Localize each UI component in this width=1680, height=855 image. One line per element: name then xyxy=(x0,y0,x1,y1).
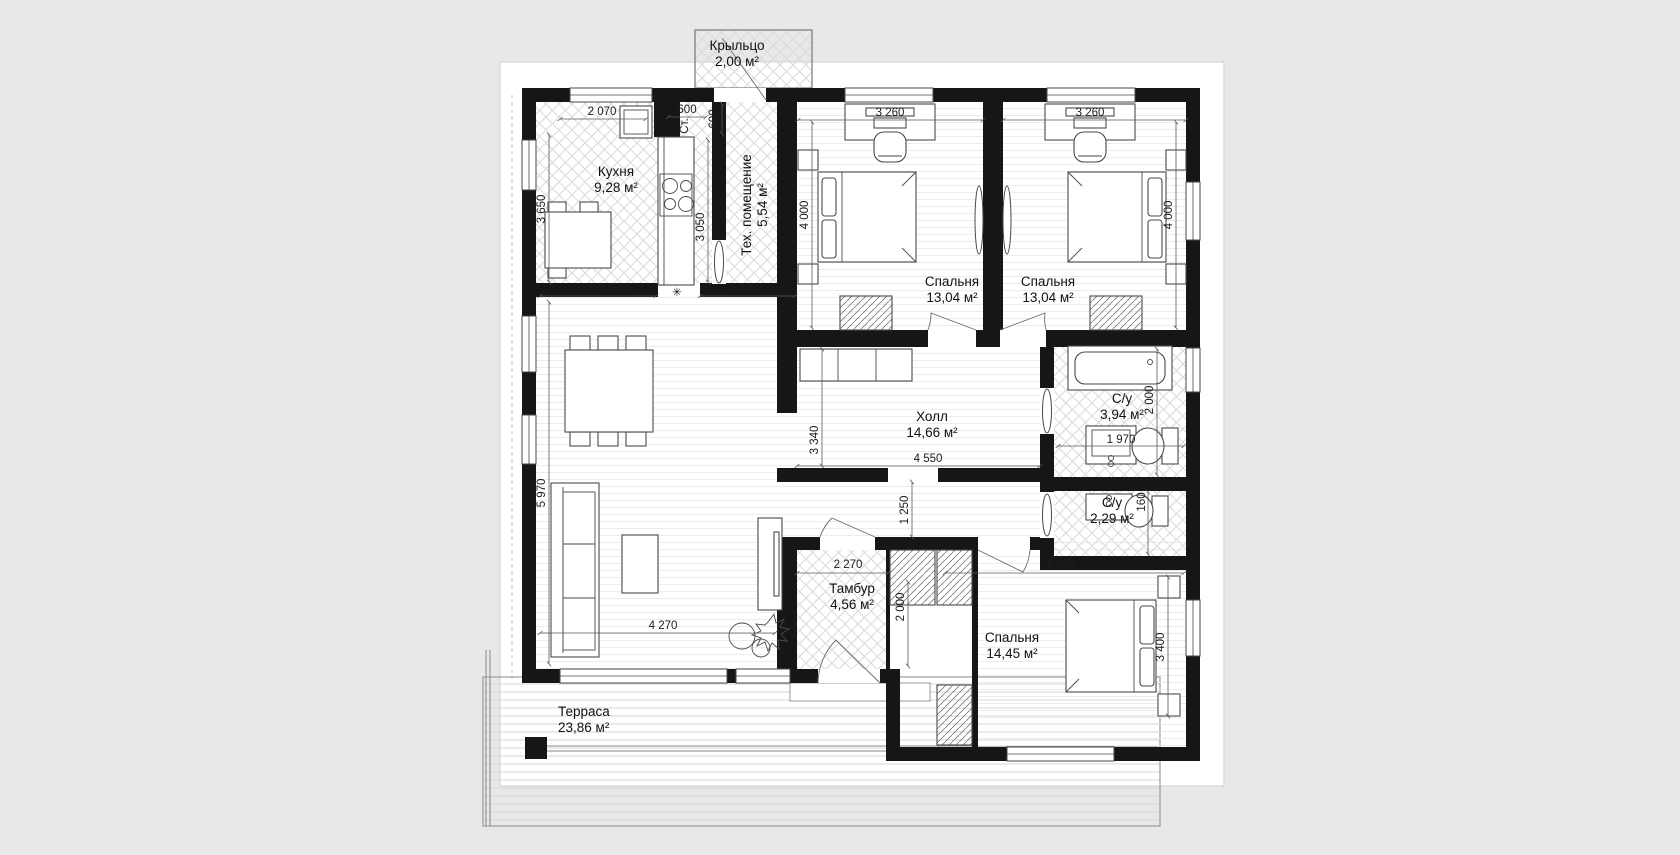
room-label-terrace: Терраса 23,86 м² xyxy=(558,704,610,735)
bedroom3-area: 14,45 м² xyxy=(986,646,1038,661)
dim-bedroom3-width: 4 250 xyxy=(1046,559,1075,571)
sofa-icon xyxy=(551,483,599,657)
bed-icon xyxy=(1068,172,1166,262)
door-icon xyxy=(1040,492,1054,538)
window-icon xyxy=(570,88,652,102)
bath2-area: 2,29 м² xyxy=(1090,511,1134,526)
wardrobe-icon xyxy=(1090,296,1142,330)
wardrobe-icon xyxy=(937,550,972,605)
bed-icon xyxy=(1066,600,1156,692)
washing-machine-icon xyxy=(620,106,652,138)
window-icon xyxy=(1186,600,1200,656)
room-label-porch: Крыльцо 2,00 м² xyxy=(709,38,764,69)
dim-hall-height: 3 340 xyxy=(809,426,821,455)
dim-living-height: 5 970 xyxy=(536,479,548,508)
bath1-area: 3,94 м² xyxy=(1100,407,1144,422)
dim-bath1-height: 2 000 xyxy=(1144,386,1156,415)
wardrobe-icon xyxy=(840,296,892,330)
dim-bath2-height: 160 xyxy=(1136,492,1148,511)
dim-bedroom1-width: 3 260 xyxy=(876,107,905,119)
entrance-landing xyxy=(790,683,930,701)
bathtub-icon xyxy=(1068,346,1172,390)
tech-name: Тех. помещение xyxy=(739,154,754,256)
tech-area: 5,54 м² xyxy=(755,183,770,227)
window-icon xyxy=(1186,348,1200,392)
window-icon xyxy=(522,316,536,372)
window-icon xyxy=(522,140,536,190)
closet-icon xyxy=(800,349,912,381)
dim-tech-door: 600 xyxy=(708,109,720,128)
door-icon xyxy=(888,468,938,482)
door-icon xyxy=(712,240,726,284)
window-icon xyxy=(736,669,790,683)
kitchen-name: Кухня xyxy=(598,164,634,179)
vestibule-area: 4,56 м² xyxy=(830,597,874,612)
bath1-name: С/у xyxy=(1112,391,1133,406)
vestibule-name: Тамбур xyxy=(829,581,875,596)
dim-bedroom1-height: 4 000 xyxy=(799,201,811,230)
room-label-bedroom1: Спальня 13,04 м² xyxy=(925,274,979,305)
room-label-vestibule: Тамбур 4,56 м² xyxy=(829,581,875,612)
chair-icon xyxy=(874,132,906,162)
dim-bath1-width: 1 970 xyxy=(1107,434,1136,446)
dim-counter-height: 3 050 xyxy=(695,213,707,242)
window-icon xyxy=(1047,88,1135,102)
dining-table-icon xyxy=(545,202,611,278)
bedroom1-area: 13,04 м² xyxy=(926,290,978,305)
bedroom2-name: Спальня xyxy=(1021,274,1075,289)
window-icon xyxy=(1007,747,1114,761)
window-icon xyxy=(845,88,933,102)
window-icon xyxy=(522,415,536,464)
room-label-bedroom2: Спальня 13,04 м² xyxy=(1021,274,1075,305)
boiler-symbol: ✳ xyxy=(672,287,682,299)
floor-plan-canvas: 2 070 600 600 Ст. 3 650 3 050 2 670 1 42… xyxy=(0,0,1680,855)
window-icon xyxy=(560,669,727,683)
dim-bedroom2-width: 3 260 xyxy=(1076,107,1105,119)
bed-icon xyxy=(818,172,916,262)
room-label-bedroom3: Спальня 14,45 м² xyxy=(985,630,1039,661)
room-label-kitchen: Кухня 9,28 м² xyxy=(594,164,638,195)
terrace-column xyxy=(525,737,547,759)
dim-kitchen-window: 2 070 xyxy=(588,106,617,118)
porch-area: 2,00 м² xyxy=(715,54,759,69)
bath2-name: С/у xyxy=(1102,495,1123,510)
window-icon xyxy=(1186,182,1200,240)
door-icon xyxy=(1040,388,1054,434)
dim-kitchen-width: 2 670 xyxy=(599,283,628,295)
dim-vestibule-height: 2 000 xyxy=(895,593,907,622)
dim-bedroom2-height: 4 000 xyxy=(1163,201,1175,230)
dim-passage-height: 1 250 xyxy=(899,496,911,525)
kitchen-area: 9,28 м² xyxy=(594,180,638,195)
floor-plan-drawing: 2 070 600 600 Ст. 3 650 3 050 2 670 1 42… xyxy=(0,0,1680,855)
terrace-name: Терраса xyxy=(558,704,610,719)
bedroom2-area: 13,04 м² xyxy=(1022,290,1074,305)
porch-name: Крыльцо xyxy=(709,38,764,53)
wardrobe-icon xyxy=(937,685,972,745)
washer-label: Ст. xyxy=(679,118,691,134)
dim-tech-width: 1 420 xyxy=(730,283,759,295)
tv-console-icon xyxy=(758,518,782,610)
bedroom1-name: Спальня xyxy=(925,274,979,289)
terrace-area: 23,86 м² xyxy=(558,720,610,735)
dim-living-width: 4 270 xyxy=(649,620,678,632)
chair-icon xyxy=(1074,132,1106,162)
hall-name: Холл xyxy=(916,409,948,424)
dim-washer-width: 600 xyxy=(677,104,696,116)
dim-hall-width: 4 550 xyxy=(914,453,943,465)
dim-kitchen-height: 3 650 xyxy=(536,195,548,224)
hall-area: 14,66 м² xyxy=(906,425,958,440)
coffee-table-icon xyxy=(622,535,658,593)
dim-bedroom3-height: 3 400 xyxy=(1155,633,1167,662)
bedroom3-name: Спальня xyxy=(985,630,1039,645)
dim-vestibule-width: 2 270 xyxy=(834,559,863,571)
dining-table-icon xyxy=(565,336,653,446)
